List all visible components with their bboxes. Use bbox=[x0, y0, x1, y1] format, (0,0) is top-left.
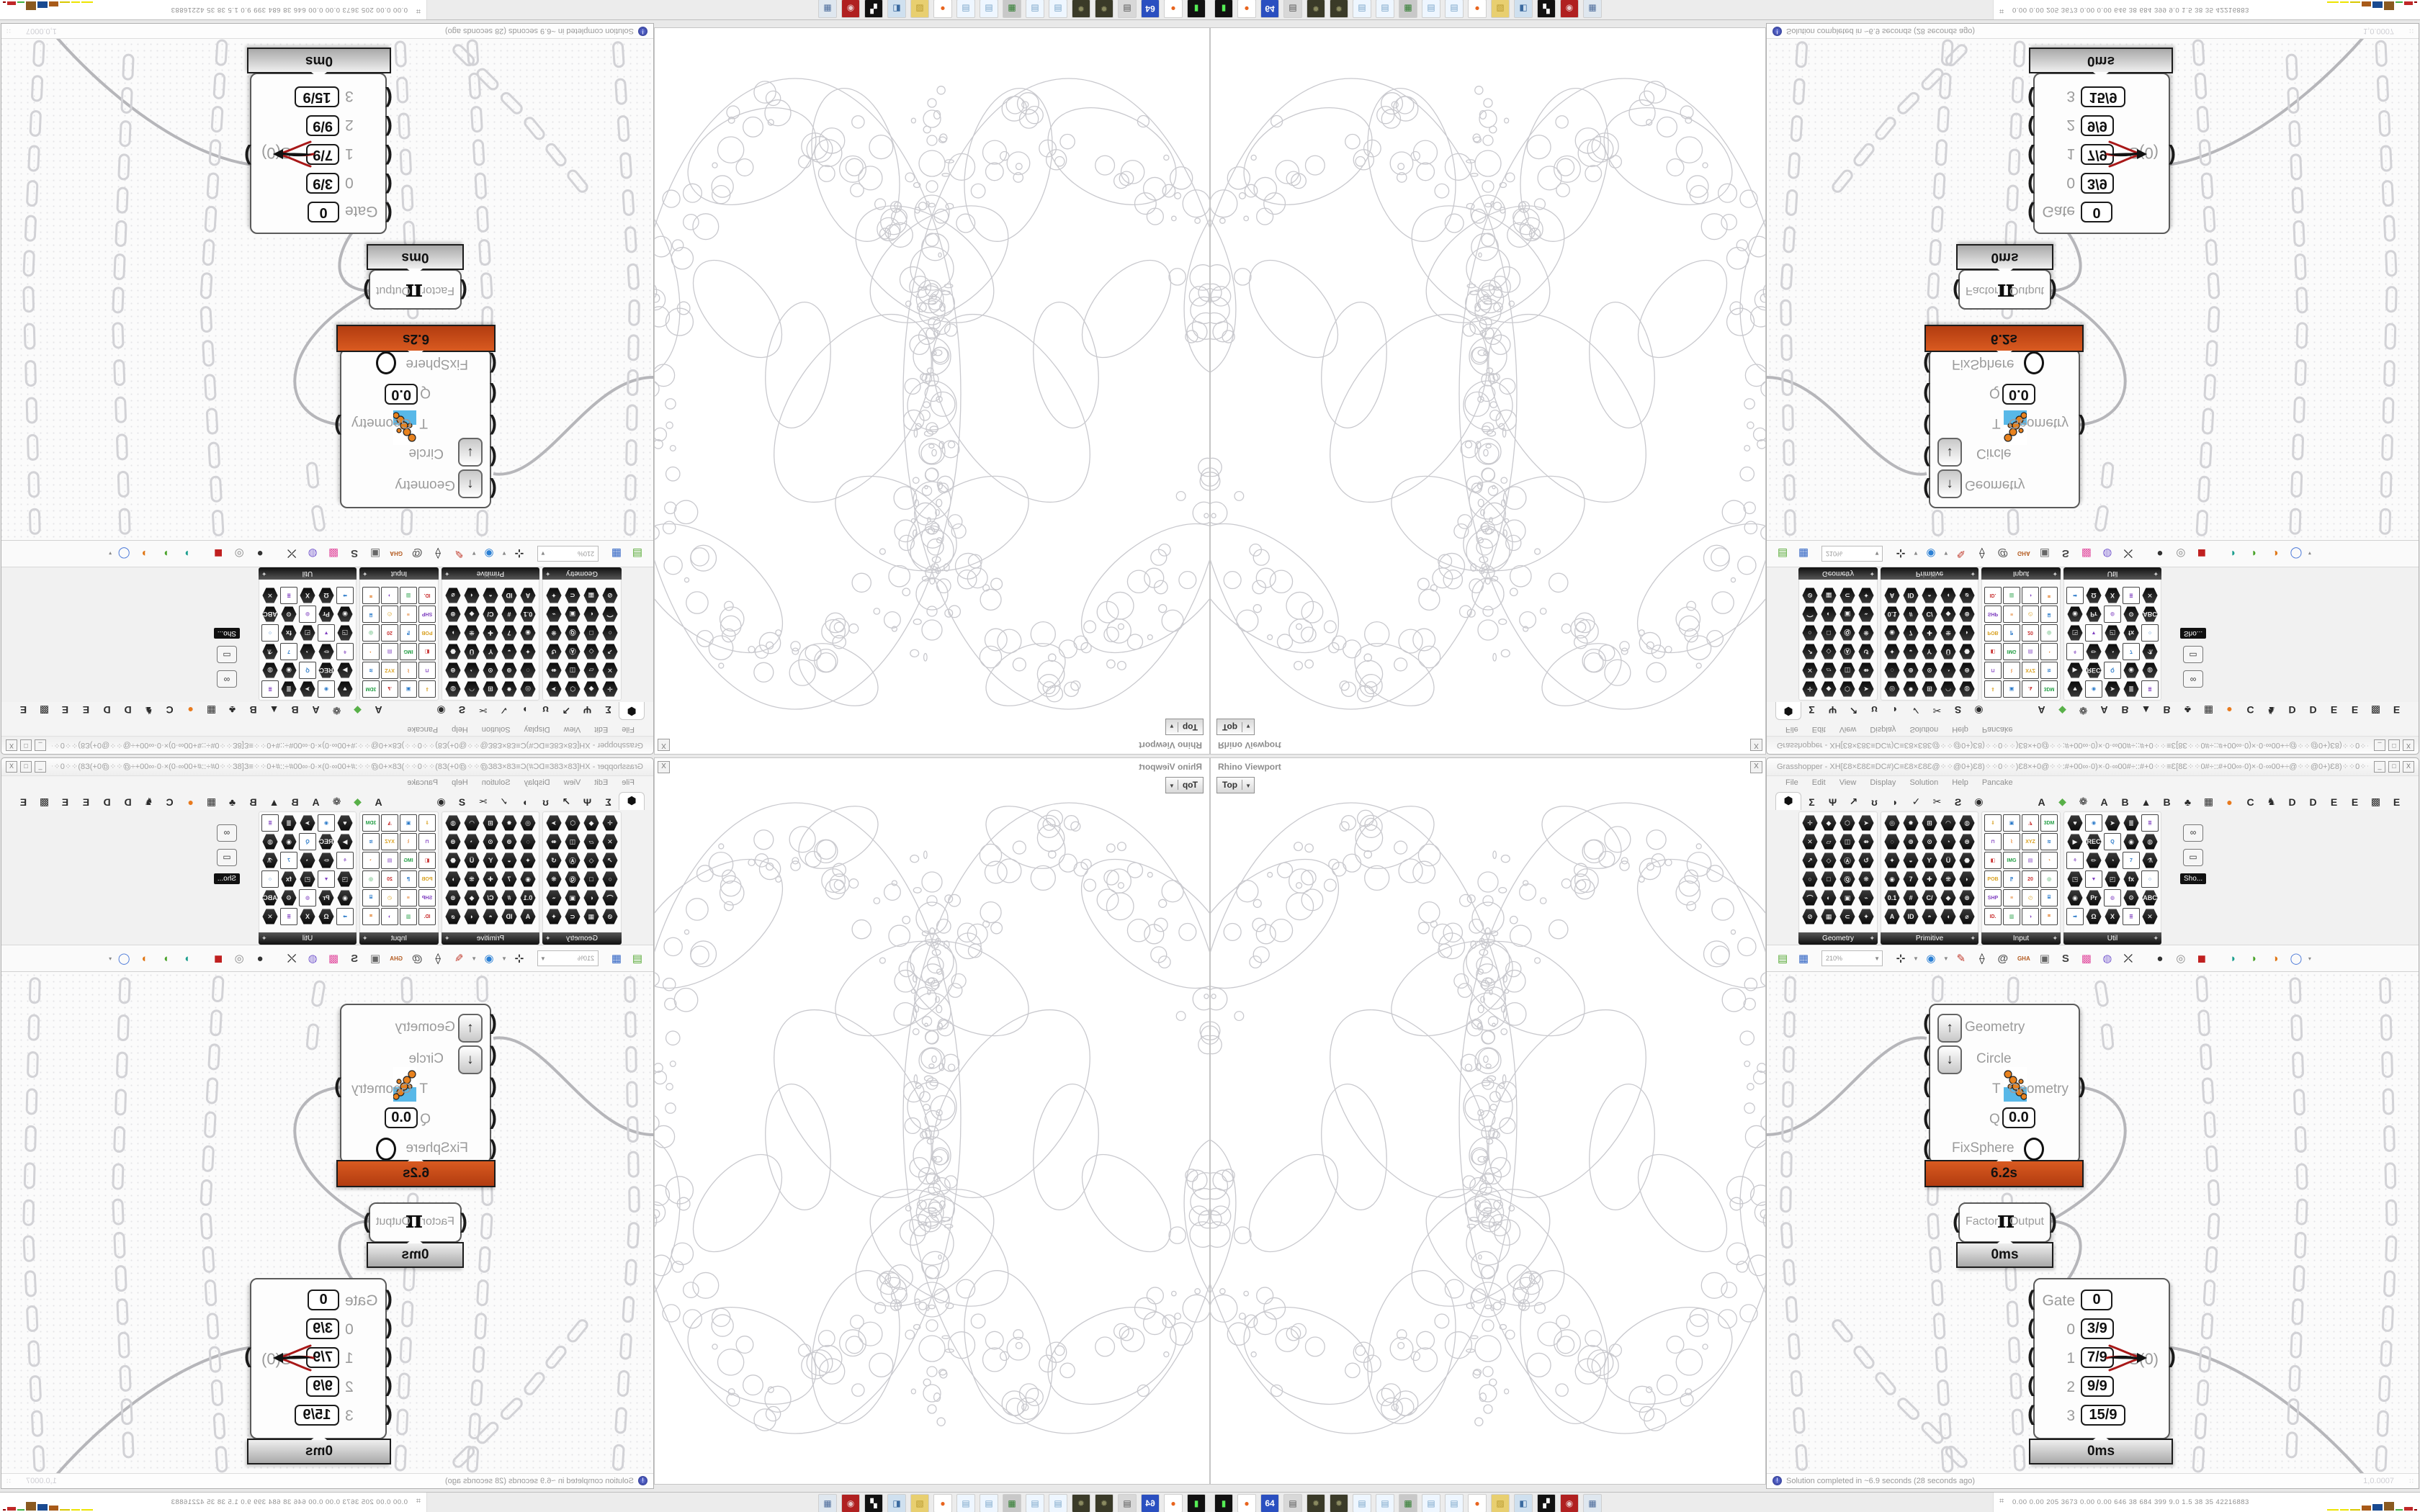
input-socket[interactable]: ( bbox=[460, 1212, 467, 1231]
tab-params-active[interactable]: ⬢ bbox=[1775, 792, 1801, 810]
category-tab[interactable]: ❁ bbox=[326, 796, 347, 810]
ribbon-icon[interactable]: ◮ bbox=[2022, 680, 2039, 698]
ribbon-icon[interactable]: ◔ bbox=[300, 644, 315, 660]
ribbon-icon[interactable]: ➤ bbox=[300, 681, 315, 697]
gate-value-box[interactable]: 3/9 bbox=[2081, 173, 2114, 194]
ribbon-icon[interactable]: fx bbox=[2123, 625, 2139, 641]
ribbon-icon[interactable]: Q bbox=[2104, 662, 2121, 679]
output-socket[interactable]: ) bbox=[2050, 1212, 2057, 1231]
category-tab[interactable]: ❁ bbox=[326, 702, 347, 716]
ribbon-icon[interactable]: ⇓ bbox=[1984, 680, 2002, 698]
category-tab[interactable]: ↗ bbox=[1843, 796, 1864, 810]
ribbon-icon[interactable]: ▶ bbox=[2067, 662, 2083, 678]
input-socket[interactable]: ( bbox=[490, 1109, 497, 1128]
box-display-icon[interactable]: ◼ bbox=[2193, 950, 2210, 967]
gift-icon[interactable]: ▩ bbox=[325, 950, 342, 967]
output-socket[interactable]: ) bbox=[363, 1212, 370, 1231]
zoom-level-combo[interactable]: 210%▼ bbox=[1821, 950, 1883, 966]
notepad-icon-4[interactable]: ▤ bbox=[956, 0, 975, 18]
ribbon-icon[interactable]: ◫ bbox=[565, 662, 581, 678]
category-tab[interactable]: B bbox=[243, 796, 264, 810]
lens-green-icon[interactable]: ◗ bbox=[157, 545, 174, 562]
menu-item-file[interactable]: File bbox=[622, 778, 635, 787]
ribbon-icon[interactable]: ⊗ bbox=[445, 890, 461, 906]
ribbon-icon[interactable]: ▥ bbox=[2003, 908, 2020, 925]
ribbon-icon[interactable]: # bbox=[501, 606, 517, 622]
ribbon-icon[interactable]: ⊙ bbox=[483, 834, 498, 850]
input-socket[interactable]: ( bbox=[490, 1077, 497, 1096]
ribbon-icon[interactable]: ⬣ bbox=[445, 644, 461, 660]
ribbon-icon[interactable]: ➤ bbox=[2105, 815, 2120, 831]
gha-icon[interactable]: GHA bbox=[2015, 950, 2033, 967]
ribbon-icon[interactable]: IMG bbox=[400, 852, 417, 869]
input-socket[interactable]: ( bbox=[460, 281, 467, 300]
script-editor-icon[interactable]: ▣ bbox=[2036, 950, 2053, 967]
gh-canvas[interactable]: ( ( ( ( ( ) ↑ ↓ Geometry Circle T bbox=[1, 972, 653, 1474]
output-socket[interactable]: ) bbox=[2169, 1347, 2176, 1366]
ribbon-icon[interactable]: ◌ bbox=[520, 834, 536, 850]
menu-item-solution[interactable]: Solution bbox=[1909, 778, 1938, 787]
ribbon-icon[interactable]: ✛ bbox=[1802, 815, 1818, 831]
ribbon-icon[interactable]: A bbox=[520, 909, 536, 924]
category-tab[interactable]: ▦ bbox=[201, 702, 222, 716]
red-emblem-icon[interactable]: ◉ bbox=[1560, 0, 1579, 18]
menu-item-edit[interactable]: Edit bbox=[1812, 725, 1826, 734]
category-tab[interactable]: ▲ bbox=[264, 796, 284, 810]
category-tab[interactable]: B bbox=[2115, 702, 2136, 716]
lens-orange-icon[interactable]: ◑ bbox=[2267, 950, 2284, 967]
ribbon-icon[interactable]: 20 bbox=[381, 624, 398, 642]
ribbon-icon[interactable]: ⊗ bbox=[1959, 606, 1975, 622]
ribbon-icon[interactable]: ◗ bbox=[445, 871, 461, 887]
ribbon-icon[interactable]: ◎ bbox=[1884, 815, 1900, 831]
category-tab[interactable]: A bbox=[368, 796, 389, 810]
category-tab[interactable]: D bbox=[2282, 796, 2303, 810]
gift-icon[interactable]: ▩ bbox=[2078, 545, 2095, 562]
input-socket[interactable]: ( bbox=[1923, 1139, 1930, 1158]
ribbon-icon[interactable]: ◉ bbox=[281, 834, 297, 850]
category-tab[interactable]: B bbox=[243, 702, 264, 716]
preview-eye-icon[interactable]: ◉ bbox=[480, 545, 498, 562]
ribbon-icon[interactable]: ⊙ bbox=[1922, 662, 1937, 678]
ribbon-icon[interactable]: ⁜ bbox=[464, 625, 480, 641]
ribbon-icon[interactable]: ⌀ bbox=[1959, 588, 1975, 603]
ribbon-icon[interactable]: ↺ bbox=[546, 852, 562, 868]
gift-icon[interactable]: ▩ bbox=[2078, 950, 2095, 967]
input-socket[interactable]: ( bbox=[2027, 117, 2035, 136]
ribbon-icon[interactable]: □ bbox=[1821, 625, 1837, 641]
preview-eye-icon[interactable]: ◉ bbox=[1922, 545, 1940, 562]
ribbon-icon[interactable]: ○ bbox=[2141, 624, 2159, 642]
ribbon-icon[interactable]: ◔ bbox=[362, 643, 380, 660]
ribbon-icon[interactable]: ◉ bbox=[520, 625, 536, 641]
ribbon-icon[interactable]: fx bbox=[281, 625, 297, 641]
close-button[interactable]: X bbox=[2403, 739, 2414, 751]
lens-teal-icon[interactable]: ◗ bbox=[2225, 545, 2242, 562]
projector-screen-icon[interactable]: ▭ bbox=[2183, 849, 2203, 866]
ribbon-icon[interactable]: ◗ bbox=[445, 625, 461, 641]
ribbon-icon[interactable]: ⁋ bbox=[400, 870, 417, 888]
input-socket[interactable]: ( bbox=[385, 89, 393, 107]
flatten-up-button[interactable]: ↑ bbox=[1937, 469, 1962, 498]
apollonian-component[interactable]: ( ( ( ( ( ) ↑ ↓ Geometry Circle T bbox=[340, 348, 491, 508]
ribbon-icon[interactable]: ⁜ bbox=[1940, 871, 1956, 887]
input-socket[interactable]: ( bbox=[1923, 1014, 1930, 1032]
menu-item-file[interactable]: File bbox=[1785, 725, 1798, 734]
fixsphere-toggle[interactable] bbox=[376, 1138, 396, 1161]
ribbon-icon[interactable]: ▣ bbox=[400, 814, 417, 832]
input-socket[interactable]: ( bbox=[490, 480, 497, 498]
ribbon-icon[interactable]: ✚ bbox=[483, 625, 498, 641]
ribbon-icon[interactable]: ⚘ bbox=[2066, 852, 2084, 869]
ribbon-icon[interactable]: ⊛ bbox=[445, 834, 461, 850]
ribbon-icon[interactable]: ◆ bbox=[1940, 606, 1956, 622]
ribbon-icon[interactable]: ⌸ bbox=[362, 606, 380, 623]
ribbon-icon[interactable]: ⌗ bbox=[2040, 908, 2058, 925]
ribbon-icon[interactable]: Ⓐ bbox=[1839, 644, 1855, 660]
input-socket[interactable]: ( bbox=[490, 384, 497, 403]
ribbon-icon[interactable]: Ⓠ bbox=[565, 625, 581, 641]
q-value-box[interactable]: 0.0 bbox=[2002, 384, 2035, 405]
ribbon-icon[interactable]: ⌸ bbox=[2040, 889, 2058, 906]
category-tab[interactable]: ❁ bbox=[2073, 702, 2094, 716]
ribbon-icon[interactable]: ◉ bbox=[2123, 834, 2139, 850]
ribbon-icon[interactable]: ⊓ bbox=[418, 662, 436, 679]
box-display-icon[interactable]: ◼ bbox=[2193, 545, 2210, 562]
titlebar[interactable]: Grasshopper - XH[Ɛ8×Ɛ8Ɛ≡DC#)C≡Ɛ8×Ɛ8Ɛ@⁘⁘@… bbox=[1767, 736, 2419, 754]
category-tab[interactable]: ▩ bbox=[2365, 796, 2386, 810]
ribbon-icon[interactable]: ◆ bbox=[1940, 890, 1956, 906]
output-socket[interactable]: ) bbox=[334, 416, 341, 435]
firefox-icon-2[interactable]: ● bbox=[1468, 1494, 1487, 1512]
ribbon-icon[interactable]: ✕ bbox=[2142, 588, 2158, 603]
notepad-icon-3[interactable]: ▤ bbox=[980, 1494, 998, 1512]
ribbon-icon[interactable]: ⇻ bbox=[546, 834, 562, 850]
ribbon-icon[interactable]: ⊛ bbox=[1959, 834, 1975, 850]
ribbon-icon[interactable]: ▦ bbox=[583, 588, 599, 603]
ribbon-icon[interactable]: ▱ bbox=[583, 834, 599, 850]
close-button[interactable]: X bbox=[6, 739, 17, 751]
ribbon-icon[interactable]: ➡ bbox=[336, 587, 354, 604]
lens-teal-icon[interactable]: ◗ bbox=[178, 950, 195, 967]
photo-negative-icon[interactable]: ▞ bbox=[1537, 1494, 1556, 1512]
ribbon-icon[interactable]: ◴ bbox=[2022, 889, 2039, 906]
projector-screen-icon[interactable]: ▭ bbox=[217, 646, 237, 663]
calculator-icon[interactable]: ▦ bbox=[1583, 0, 1602, 18]
mesh-sphere-icon[interactable]: ● bbox=[2151, 950, 2169, 967]
ribbon-icon[interactable]: ➤ bbox=[300, 815, 315, 831]
ribbon-icon[interactable]: Ⓠ bbox=[1839, 625, 1855, 641]
ribbon-icon[interactable]: 0.1 bbox=[520, 606, 536, 622]
ribbon-icon[interactable]: ≣ bbox=[280, 908, 297, 925]
ribbon-group-label[interactable]: Util✦ bbox=[2063, 567, 2161, 580]
ribbon-icon[interactable]: ◆ bbox=[1821, 681, 1837, 697]
ribbon-icon[interactable]: ⇻ bbox=[1858, 834, 1874, 850]
ribbon-icon[interactable]: ≡ bbox=[400, 606, 417, 623]
red-emblem-icon[interactable]: ◉ bbox=[841, 0, 860, 18]
firefox-icon[interactable]: ● bbox=[1164, 0, 1183, 18]
menu-item-edit[interactable]: Edit bbox=[594, 778, 608, 787]
ribbon-icon[interactable]: ✏ bbox=[318, 644, 334, 660]
ribbon-icon[interactable]: Q bbox=[299, 833, 316, 850]
ribbon-icon[interactable]: ◍ bbox=[2142, 834, 2158, 850]
category-tab[interactable]: ♣ bbox=[2177, 796, 2198, 810]
ribbon-icon[interactable]: ⊙ bbox=[1922, 834, 1937, 850]
ribbon-icon[interactable]: 7 bbox=[280, 643, 297, 660]
ribbon-icon[interactable]: ⚙ bbox=[2123, 606, 2139, 622]
ribbon-icon[interactable]: 0.1 bbox=[520, 890, 536, 906]
ribbon-icon[interactable]: # bbox=[501, 890, 517, 906]
mesh-sphere-icon[interactable]: ● bbox=[2151, 545, 2169, 562]
ribbon-icon[interactable]: POB bbox=[418, 624, 436, 642]
ribbon-icon[interactable]: ⊕ bbox=[1903, 834, 1919, 850]
view-selector-button[interactable]: Top▼ bbox=[1165, 719, 1204, 735]
category-tab[interactable]: ◆ bbox=[347, 796, 368, 810]
ribbon-icon[interactable]: IMG bbox=[2003, 852, 2020, 869]
ribbon-icon[interactable]: ⊗ bbox=[445, 606, 461, 622]
exposure-icon[interactable]: ⟠ bbox=[429, 545, 447, 562]
category-tab[interactable]: Σ bbox=[598, 702, 619, 716]
gate-component[interactable]: ( ( ( ( ( ) Gate003/917/929/9315/9 S(0) bbox=[250, 73, 387, 234]
ribbon-icon[interactable]: ○ bbox=[2141, 870, 2159, 888]
ribbon-icon[interactable]: ◖ bbox=[464, 909, 480, 924]
ribbon-icon[interactable]: ⚗ bbox=[262, 852, 278, 868]
ribbon-icon[interactable]: 7 bbox=[1903, 871, 1919, 887]
category-tab[interactable]: E bbox=[2344, 702, 2365, 716]
category-tab[interactable]: ✂ bbox=[1927, 796, 1948, 810]
mesh-sphere-icon[interactable]: ● bbox=[251, 950, 269, 967]
publish-icon[interactable]: @ bbox=[408, 950, 426, 967]
category-tab[interactable]: ♞ bbox=[2261, 796, 2282, 810]
ribbon-icon[interactable]: ▥ bbox=[2003, 587, 2020, 604]
firefox-icon-2[interactable]: ● bbox=[933, 1494, 952, 1512]
ribbon-icon[interactable]: ◑ bbox=[2022, 908, 2039, 925]
view-selector-button[interactable]: Top▼ bbox=[1216, 719, 1255, 735]
ribbon-icon[interactable]: C/ bbox=[1922, 890, 1937, 906]
ribbon-icon[interactable]: ⌁ bbox=[546, 606, 562, 622]
maximize-button[interactable]: □ bbox=[20, 761, 32, 773]
input-socket[interactable]: ( bbox=[1953, 1212, 1960, 1231]
ribbon-icon[interactable]: ≣ bbox=[2141, 814, 2159, 832]
ribbon-icon[interactable]: ✦ bbox=[1884, 852, 1900, 868]
ribbon-icon[interactable]: SHP bbox=[1984, 889, 2002, 906]
category-tab[interactable]: B bbox=[284, 796, 305, 810]
ribbon-icon[interactable]: ⊘ bbox=[602, 588, 618, 603]
gha-icon[interactable]: GHA bbox=[2015, 545, 2033, 562]
ribbon-icon[interactable]: ◔ bbox=[2040, 852, 2058, 869]
ribbon-group-label[interactable]: Primitive✦ bbox=[1881, 932, 1978, 945]
sketch-pen-icon[interactable]: ✎ bbox=[1953, 545, 1970, 562]
category-tab[interactable]: A bbox=[368, 702, 389, 716]
category-tab[interactable]: E bbox=[2323, 702, 2344, 716]
ribbon-icon[interactable]: ◒ bbox=[501, 852, 517, 868]
menu-item-display[interactable]: Display bbox=[1870, 778, 1896, 787]
lens-blue-icon[interactable]: ◯ bbox=[2287, 545, 2305, 562]
ribbon-icon[interactable]: ≋ bbox=[362, 662, 380, 679]
category-tab[interactable]: ▲ bbox=[264, 702, 284, 716]
category-tab[interactable]: D bbox=[117, 796, 138, 810]
ribbon-icon[interactable]: ▣ bbox=[1839, 890, 1855, 906]
ribbon-icon[interactable]: ▤ bbox=[381, 852, 398, 869]
minimize-button[interactable]: _ bbox=[35, 739, 46, 751]
ribbon-icon[interactable]: C/ bbox=[483, 606, 498, 622]
lens-blue-icon[interactable]: ◯ bbox=[115, 950, 133, 967]
ribbon-icon[interactable]: ⚙ bbox=[281, 606, 297, 622]
category-tab[interactable]: ʊ bbox=[535, 796, 556, 810]
input-socket[interactable]: ( bbox=[490, 1014, 497, 1032]
apollonian-component[interactable]: ( ( ( ( ( ) ↑ ↓ Geometry Circle T bbox=[1929, 1004, 2080, 1164]
ribbon-icon[interactable]: ➡ bbox=[2066, 908, 2084, 925]
category-tab[interactable]: ◉ bbox=[1968, 702, 1989, 716]
input-socket[interactable]: ( bbox=[1953, 281, 1960, 300]
notepad-icon-4[interactable]: ▤ bbox=[1445, 1494, 1464, 1512]
ribbon-icon[interactable]: ✕ bbox=[602, 662, 618, 678]
ribbon-icon[interactable]: ABC bbox=[262, 606, 278, 622]
close-icon[interactable]: X bbox=[658, 761, 670, 773]
ribbon-icon[interactable]: ↺ bbox=[546, 644, 562, 660]
close-button[interactable]: X bbox=[6, 761, 17, 773]
ribbon-icon[interactable]: 3DM bbox=[2040, 680, 2058, 698]
lens-green-icon[interactable]: ◗ bbox=[2246, 950, 2263, 967]
media-icon[interactable]: ◧ bbox=[887, 0, 906, 18]
input-socket[interactable]: ( bbox=[2027, 204, 2035, 222]
ribbon-icon[interactable]: X bbox=[2105, 909, 2120, 924]
ribbon-icon[interactable]: ○ bbox=[261, 624, 279, 642]
ribbon-icon[interactable]: Ƴ bbox=[483, 852, 498, 868]
category-tab[interactable]: E bbox=[2386, 796, 2407, 810]
gate-value-box[interactable]: 9/9 bbox=[2081, 1376, 2114, 1397]
ribbon-icon[interactable]: ⚗ bbox=[2142, 644, 2158, 660]
ribbon-icon[interactable]: ⬡ bbox=[1839, 681, 1855, 697]
media-icon[interactable]: ◧ bbox=[1514, 1494, 1533, 1512]
preview-eye-icon[interactable]: ◉ bbox=[1922, 950, 1940, 967]
ribbon-icon[interactable]: ⌇ bbox=[400, 662, 417, 679]
ribbon-icon[interactable]: POB bbox=[1984, 624, 2002, 642]
category-tab[interactable]: Σ bbox=[1801, 702, 1822, 716]
ribbon-icon[interactable]: ◆ bbox=[583, 815, 599, 831]
ribbon-icon[interactable]: ♥ bbox=[337, 681, 353, 697]
menu-item-pancake[interactable]: Pancake bbox=[1982, 778, 2013, 787]
category-tab[interactable]: ♞ bbox=[138, 702, 159, 716]
finder-icon[interactable]: S bbox=[346, 950, 363, 967]
gate-value-box[interactable]: 15/9 bbox=[295, 86, 339, 107]
open-file-icon[interactable]: ▤ bbox=[1774, 545, 1791, 562]
ribbon-icon[interactable]: ◔ bbox=[362, 852, 380, 869]
display-icon[interactable]: ▦ bbox=[1399, 1494, 1417, 1512]
q-value-box[interactable]: 0.0 bbox=[385, 1107, 418, 1128]
category-tab[interactable]: E bbox=[13, 702, 34, 716]
ribbon-icon[interactable]: ◰ bbox=[2105, 625, 2120, 641]
category-tab[interactable]: D bbox=[117, 702, 138, 716]
gate-component[interactable]: ( ( ( ( ( ) Gate003/917/929/9315/9 S(0) bbox=[250, 1278, 387, 1439]
preview-eye-icon[interactable]: ◉ bbox=[480, 950, 498, 967]
category-tab[interactable]: A bbox=[2094, 796, 2115, 810]
ribbon-icon[interactable]: ≣ bbox=[280, 587, 297, 604]
minimize-button[interactable]: _ bbox=[2374, 761, 2385, 773]
maximize-button[interactable]: □ bbox=[2388, 761, 2400, 773]
ribbon-icon[interactable]: ◉ bbox=[2067, 606, 2083, 622]
notepad-icon[interactable]: ▤ bbox=[1353, 0, 1371, 18]
ribbon-icon[interactable]: ⌸ bbox=[2040, 606, 2058, 623]
category-tab[interactable]: Σ bbox=[598, 796, 619, 810]
mesh-torus-icon[interactable]: ◎ bbox=[230, 545, 248, 562]
ribbon-icon[interactable]: ID. bbox=[1984, 587, 2002, 604]
ribbon-icon[interactable]: ⁋ bbox=[400, 624, 417, 642]
gate-value-box[interactable]: 3/9 bbox=[306, 173, 339, 194]
ribbon-icon[interactable]: ◉ bbox=[2085, 814, 2102, 832]
ribbon-icon[interactable]: Ω bbox=[318, 588, 334, 603]
category-tab[interactable]: ✂ bbox=[1927, 702, 1948, 716]
category-tab[interactable]: A bbox=[2094, 702, 2115, 716]
ribbon-icon[interactable]: ◑ bbox=[381, 908, 398, 925]
projector-screen-icon[interactable]: ▭ bbox=[217, 849, 237, 866]
ribbon-icon[interactable]: ⇓ bbox=[1984, 814, 2002, 832]
ribbon-icon[interactable]: ◉ bbox=[2085, 680, 2102, 698]
ribbon-icon[interactable]: ◔ bbox=[2040, 643, 2058, 660]
ribbon-icon[interactable]: ◧ bbox=[1984, 852, 2002, 869]
ribbon-icon[interactable]: ◉ bbox=[337, 606, 353, 622]
notepad-icon-4[interactable]: ▤ bbox=[956, 1494, 975, 1512]
ribbon-icon[interactable]: ◮ bbox=[2022, 814, 2039, 832]
input-socket[interactable]: ( bbox=[385, 1347, 393, 1366]
ribbon-icon[interactable]: ≣ bbox=[2123, 815, 2139, 831]
ribbon-icon[interactable]: ⊗ bbox=[1959, 890, 1975, 906]
ribbon-icon[interactable]: ≣ bbox=[2123, 908, 2140, 925]
lens-teal-icon[interactable]: ◗ bbox=[178, 545, 195, 562]
ribbon-icon[interactable]: Pr bbox=[318, 606, 334, 622]
titlebar[interactable]: Grasshopper - XH[Ɛ8×Ɛ8Ɛ≡DC#)C≡Ɛ8×Ɛ8Ɛ@⁘⁘@… bbox=[1, 736, 653, 754]
ribbon-group-label[interactable]: Util✦ bbox=[259, 567, 357, 580]
ribbon-icon[interactable]: ⌒ bbox=[1802, 890, 1818, 906]
resize-grip[interactable]: ∷ bbox=[6, 27, 11, 35]
ribbon-icon[interactable]: ◔ bbox=[464, 662, 480, 678]
ribbon-icon[interactable]: ▤ bbox=[381, 643, 398, 660]
ribbon-icon[interactable]: ◇ bbox=[1821, 852, 1837, 868]
ribbon-icon[interactable]: ◉ bbox=[2067, 890, 2083, 906]
ribbon-icon[interactable]: ⊘ bbox=[1802, 909, 1818, 924]
ribbon-icon[interactable]: ⊙ bbox=[483, 662, 498, 678]
ribbon-icon[interactable]: ⁜ bbox=[464, 871, 480, 887]
ribbon-icon[interactable]: Ω bbox=[318, 909, 334, 924]
ribbon-icon[interactable]: ◐ bbox=[583, 890, 599, 906]
ribbon-icon[interactable]: ⚗ bbox=[262, 644, 278, 660]
ribbon-icon[interactable]: ◮ bbox=[381, 680, 398, 698]
ribbon-icon[interactable]: SHP bbox=[418, 606, 436, 623]
calculator-icon[interactable]: ▦ bbox=[818, 1494, 837, 1512]
tab-params-active[interactable]: ⬢ bbox=[1775, 702, 1801, 720]
category-tab[interactable]: Σ bbox=[1801, 796, 1822, 810]
input-socket[interactable]: ( bbox=[1923, 480, 1930, 498]
ribbon-icon[interactable]: ◍ bbox=[2104, 889, 2121, 906]
category-tab[interactable]: ● bbox=[180, 702, 201, 716]
open-file-icon[interactable]: ▤ bbox=[1774, 950, 1791, 967]
ribbon-icon[interactable]: ◎ bbox=[1884, 681, 1900, 697]
input-socket[interactable]: ( bbox=[2027, 146, 2035, 165]
ribbon-icon[interactable]: XYZ bbox=[381, 833, 398, 850]
ribbon-group-label[interactable]: Input✦ bbox=[1981, 932, 2061, 945]
category-tab[interactable]: ↗ bbox=[556, 702, 577, 716]
category-tab[interactable]: ▩ bbox=[2365, 702, 2386, 716]
ribbon-icon[interactable]: ◍ bbox=[2142, 662, 2158, 678]
input-socket[interactable]: ( bbox=[1923, 354, 1930, 373]
ribbon-icon[interactable]: ⬡ bbox=[565, 681, 581, 697]
ribbon-icon[interactable]: ⌗ bbox=[362, 587, 380, 604]
ribbon-icon[interactable]: XYZ bbox=[2022, 662, 2039, 679]
minimize-button[interactable]: _ bbox=[35, 761, 46, 773]
calculator-icon[interactable]: ▦ bbox=[818, 0, 837, 18]
ribbon-icon[interactable]: 0.1 bbox=[1884, 890, 1900, 906]
flatten-up-button[interactable]: ↑ bbox=[458, 469, 483, 498]
